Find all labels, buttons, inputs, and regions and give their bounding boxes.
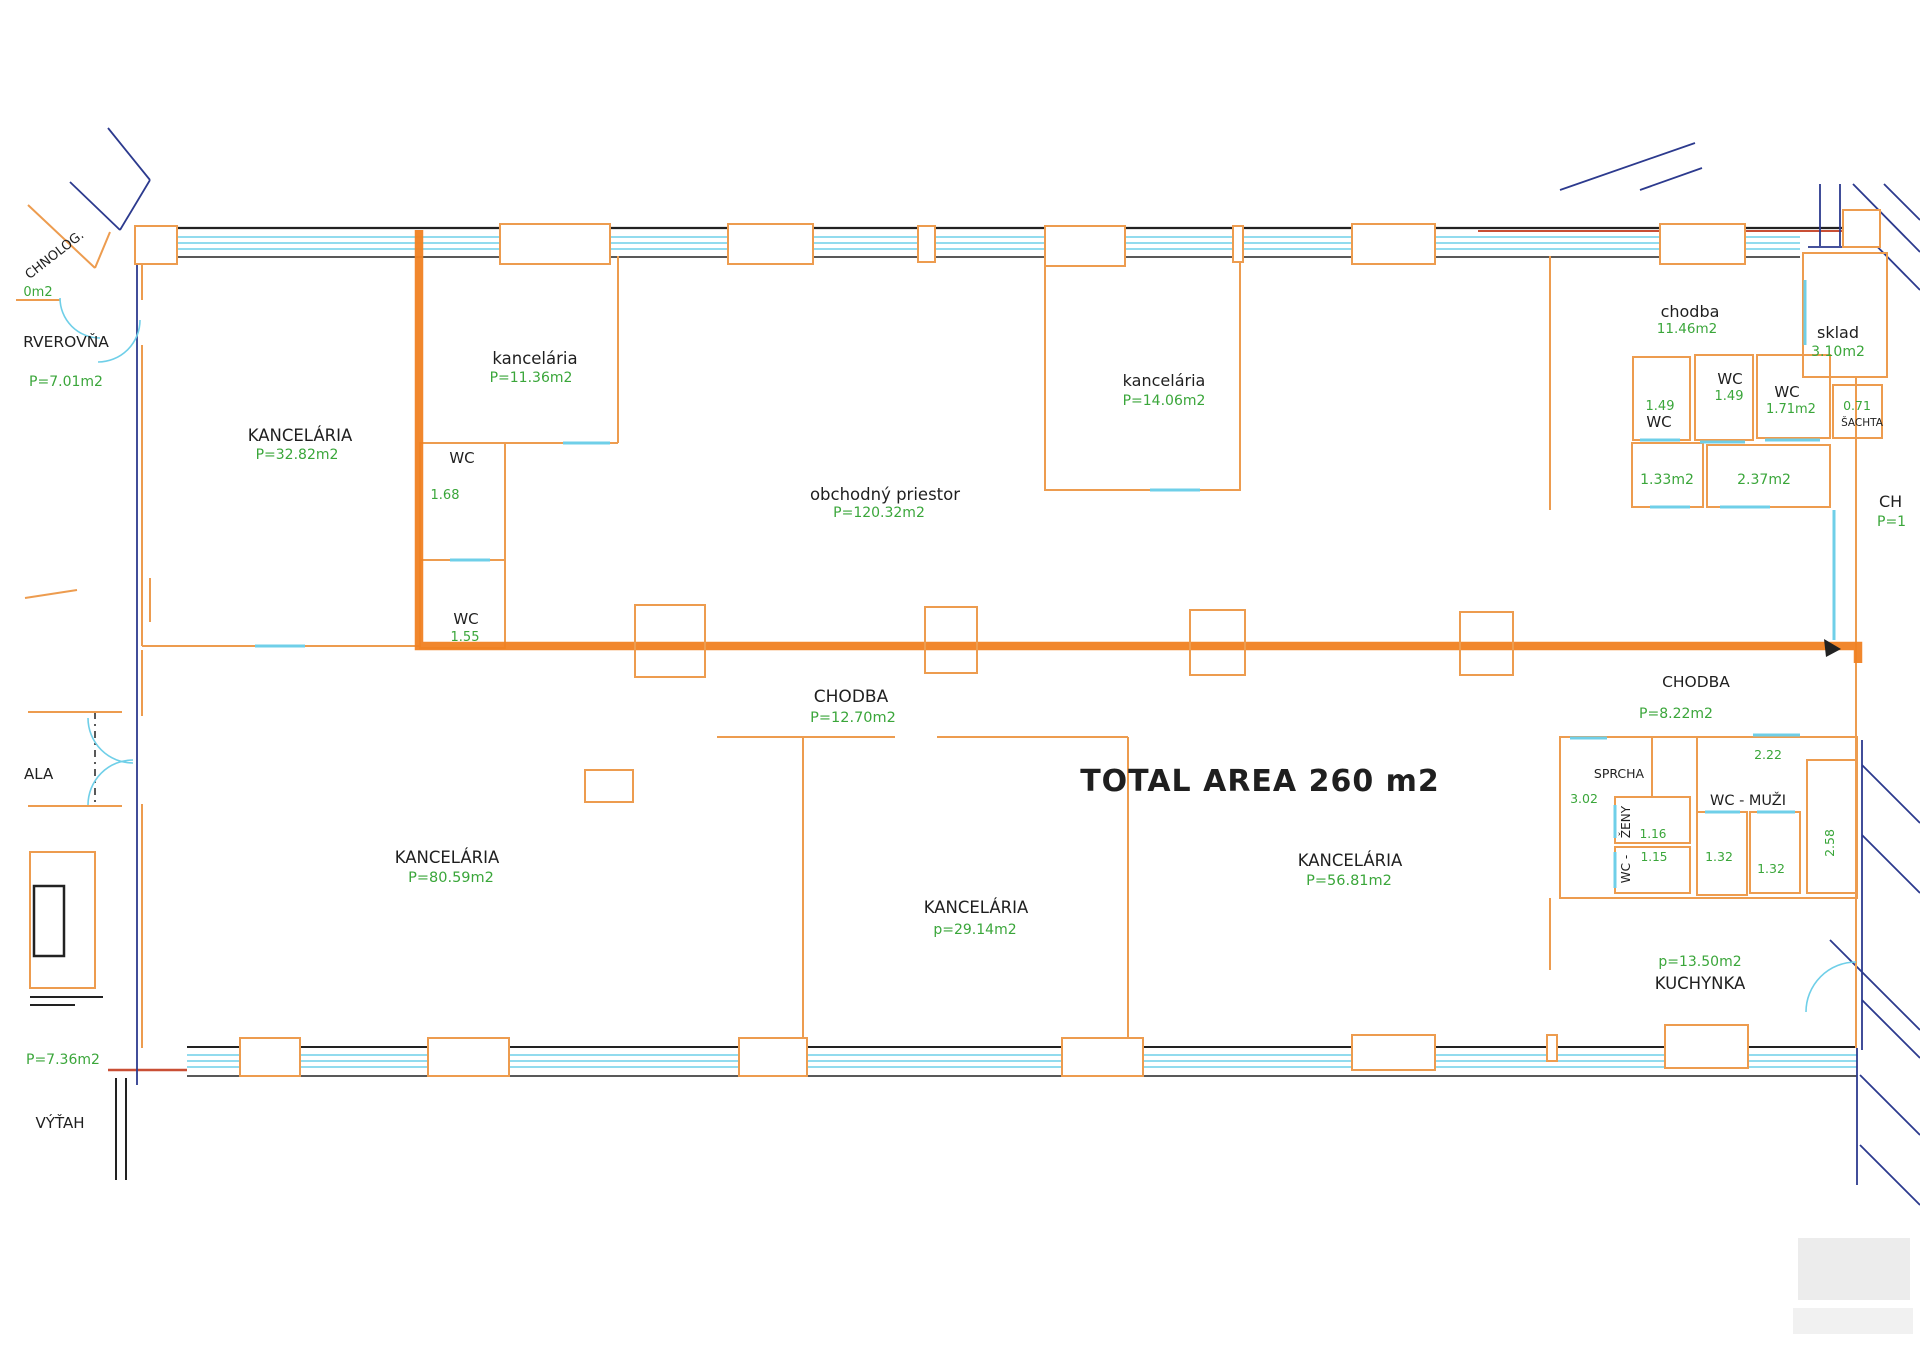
label-serverovna-name: RVEROVŇA [23, 332, 109, 351]
highlight-route [419, 230, 1858, 663]
corridor-columns [635, 605, 1513, 677]
label-sprcha-area: 3.02 [1570, 791, 1598, 806]
label-wc-zeny-area: 1.15 [1641, 850, 1668, 864]
label-wc-155-name: WC [453, 610, 478, 628]
label-sachta-area: 0.71 [1843, 398, 1871, 413]
label-chodba-stred-name: CHODBA [814, 687, 889, 707]
label-serverovna-area: P=7.01m2 [29, 374, 103, 390]
label-kabinka-132a-area: 1.32 [1705, 849, 1733, 864]
label-kancelaria-56-name: KANCELÁRIA [1298, 851, 1403, 870]
label-technolog-area: 0m2 [23, 285, 52, 300]
label-kabinka-132b-area: 1.32 [1757, 861, 1785, 876]
label-kancelaria-32-name: KANCELÁRIA [248, 426, 353, 445]
label-wc-168-area: 1.68 [431, 488, 460, 503]
stair-hatch-right [1830, 765, 1920, 1058]
label-sachta-name: ŠACHTA [1841, 416, 1884, 429]
outer-walls-black [30, 228, 1857, 1180]
stair-hatch-top [1560, 143, 1702, 190]
blue-outline-and-hatch [70, 128, 1920, 1205]
label-wc-muzi-name: WC - MUŽI [1710, 791, 1786, 809]
label-sprcha-name: SPRCHA [1594, 766, 1645, 781]
label-chodba-cut-name: CH [1879, 492, 1902, 511]
label-chodba-horna-name: chodba [1661, 302, 1720, 321]
label-kancelaria-14-name: kancelária [1123, 371, 1206, 390]
label-kancelaria-80-name: KANCELÁRIA [395, 848, 500, 867]
label-kancelaria-32-area: P=32.82m2 [256, 447, 339, 463]
label-technolog-name: CHNOLOG. [23, 228, 87, 283]
label-kuchynka-area: p=13.50m2 [1658, 954, 1741, 970]
label-wc-149b-name: WC [1717, 370, 1742, 388]
label-chodba-stred-area: P=12.70m2 [810, 710, 896, 726]
label-wc-149a-area: 1.49 [1646, 399, 1675, 414]
door-arc-serverovna-a [60, 298, 100, 338]
label-chodba-prava-area: P=8.22m2 [1639, 706, 1713, 722]
label-wc-155-area: 1.55 [451, 630, 480, 645]
label-total-area: TOTAL AREA 260 m2 [1080, 764, 1440, 799]
label-zeny-name: ŽENY [1618, 805, 1633, 838]
label-kuchynka-name: KUCHYNKA [1655, 974, 1746, 993]
label-chodba-horna-area: 11.46m2 [1657, 321, 1717, 337]
label-kabinka-258-area: 2.58 [1822, 829, 1837, 857]
stair-hatch-bottom-right [1860, 1075, 1920, 1205]
label-vytah-area: P=7.36m2 [26, 1052, 100, 1068]
watermark [1793, 1238, 1913, 1334]
label-wc-149a-name: WC [1646, 413, 1671, 431]
floorplan-canvas: CHNOLOG. 0m2 RVEROVŇA P=7.01m2 KANCELÁRI… [0, 0, 1920, 1357]
double-door-arc-left-bottom [88, 760, 133, 805]
label-kancelaria-11-area: P=11.36m2 [490, 370, 573, 386]
label-kancelaria-11-name: kancelária [492, 349, 577, 368]
label-kancelaria-29-area: p=29.14m2 [933, 922, 1016, 938]
label-vytah-name: VÝŤAH [36, 1113, 85, 1132]
label-sala-name: ALA [24, 765, 54, 783]
label-wc-171-area: 1.71m2 [1766, 402, 1816, 417]
label-kancelaria-14-area: P=14.06m2 [1123, 393, 1206, 409]
label-obchodny-area: P=120.32m2 [833, 505, 925, 521]
label-kabinka-133-area: 1.33m2 [1640, 472, 1694, 488]
label-wc-171-name: WC [1774, 383, 1799, 401]
door-arc-kuchynka [1806, 962, 1856, 1012]
label-sklad-area: 3.10m2 [1811, 344, 1865, 360]
label-zeny-area: 1.16 [1640, 827, 1667, 841]
label-obchodny-name: obchodný priestor [810, 485, 960, 504]
label-kabinka-237-area: 2.37m2 [1737, 472, 1791, 488]
label-chodba-cut-area: P=1 [1877, 514, 1906, 530]
label-wc-168-name: WC [449, 449, 474, 467]
route-arrowhead [1824, 639, 1841, 657]
label-wc-149b-area: 1.49 [1715, 389, 1744, 404]
label-chodba-prava-name: CHODBA [1662, 673, 1730, 691]
label-sklad-name: sklad [1817, 323, 1859, 342]
label-muzi-predsien-area: 2.22 [1754, 747, 1782, 762]
labels: CHNOLOG. 0m2 RVEROVŇA P=7.01m2 KANCELÁRI… [23, 228, 1906, 1132]
label-kancelaria-56-area: P=56.81m2 [1306, 873, 1392, 889]
label-kancelaria-80-area: P=80.59m2 [408, 870, 494, 886]
label-kancelaria-29-name: KANCELÁRIA [924, 898, 1029, 917]
label-wc-zeny-name: WC - [1619, 855, 1633, 883]
